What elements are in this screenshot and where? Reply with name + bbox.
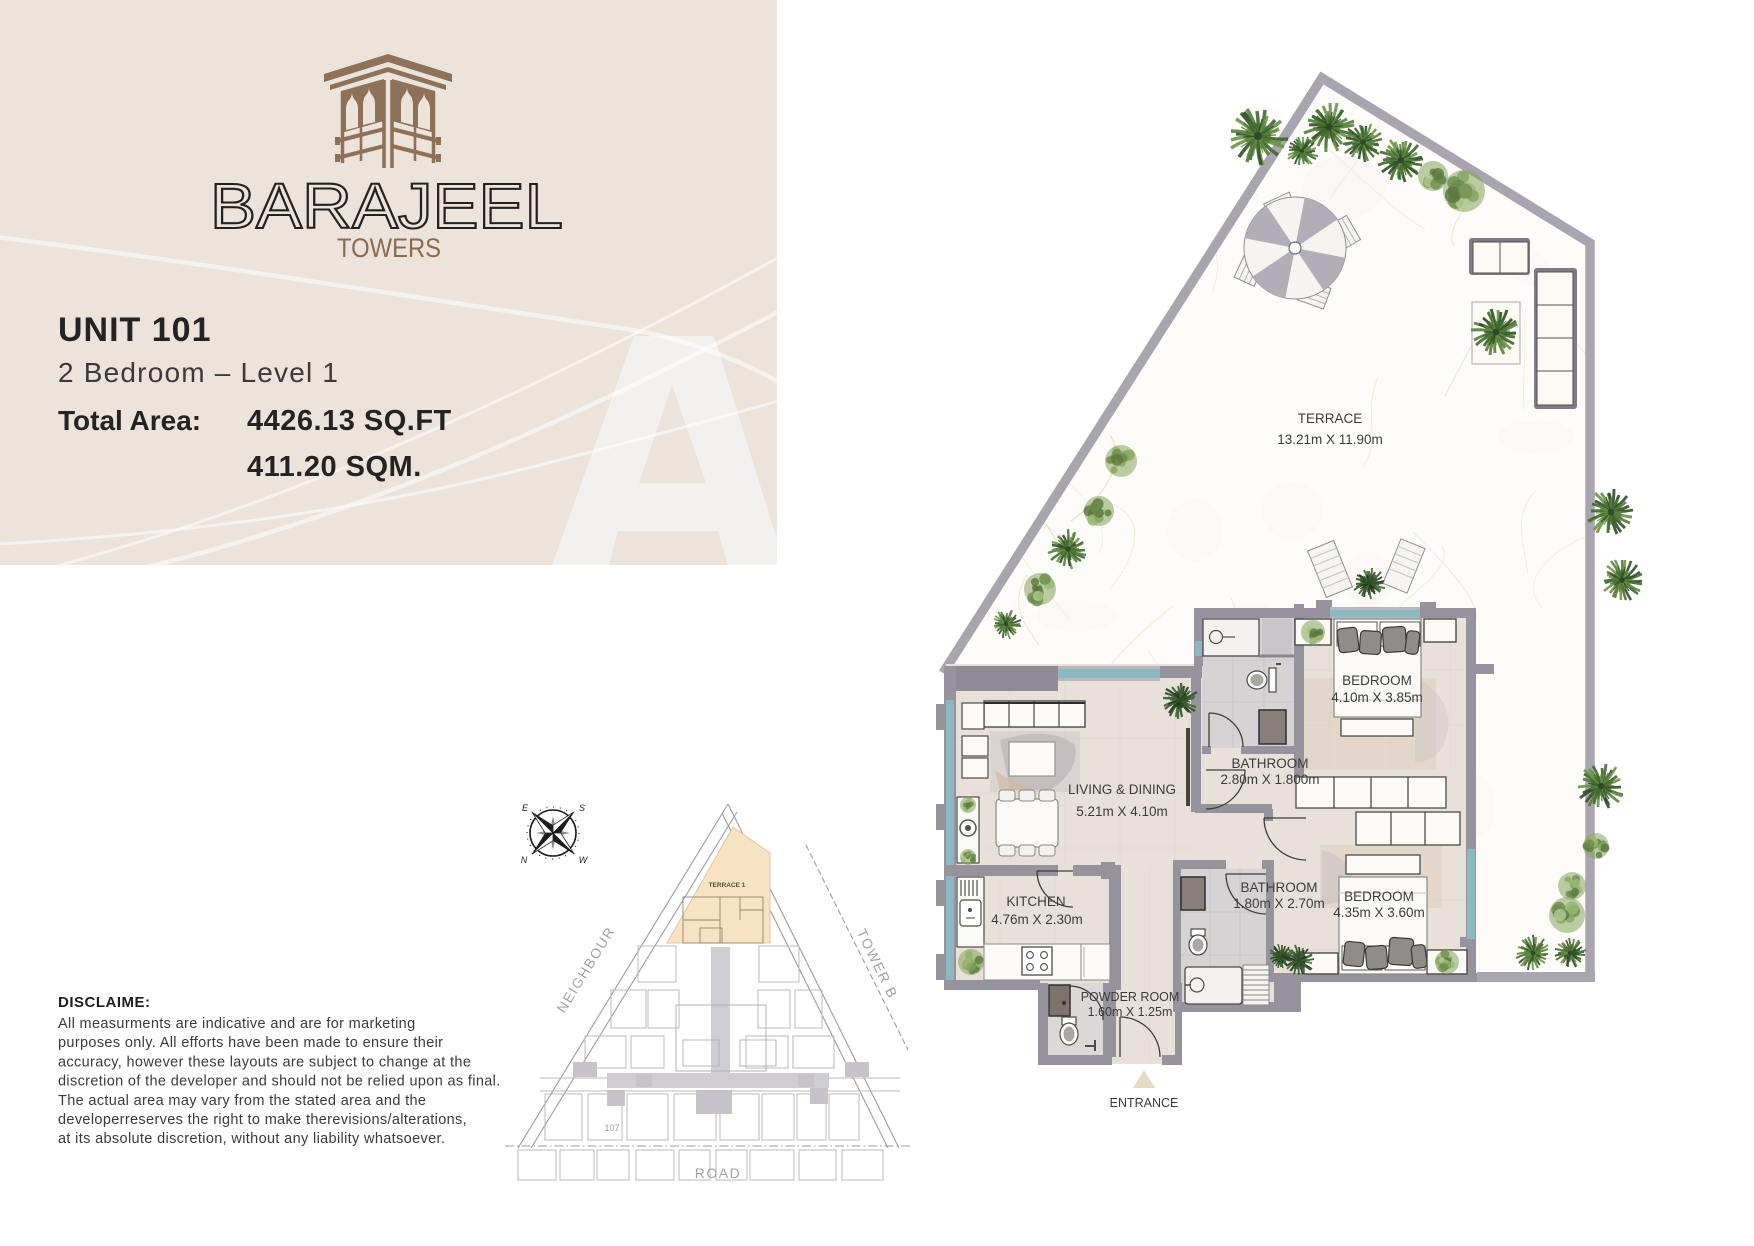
svg-text:TERRACE 1: TERRACE 1 [709,882,746,889]
svg-text:Total Area:: Total Area: [58,405,201,436]
svg-text:107: 107 [604,1123,619,1133]
svg-text:13.21m X 11.90m: 13.21m X 11.90m [1277,432,1383,447]
svg-text:at its absolute discretion, wi: at its absolute discretion, without any … [58,1131,445,1147]
svg-text:The actual area may vary from: The actual area may vary from the stated… [58,1093,426,1109]
svg-text:POWDER ROOM: POWDER ROOM [1081,990,1180,1004]
svg-text:BARAJEEL: BARAJEEL [210,170,563,242]
svg-text:ROAD: ROAD [695,1165,741,1181]
svg-text:S: S [579,803,585,813]
svg-text:DISCLAIME:: DISCLAIME: [58,994,151,1011]
svg-text:ENTRANCE: ENTRANCE [1110,1096,1179,1110]
svg-text:purposes only. All efforts hav: purposes only. All efforts have been mad… [58,1035,443,1051]
svg-text:1.60m X 1.25m: 1.60m X 1.25m [1088,1005,1173,1019]
svg-text:4.10m X 3.85m: 4.10m X 3.85m [1331,690,1423,705]
svg-text:BEDROOM: BEDROOM [1342,673,1412,688]
svg-text:developerreserves the right to: developerreserves the right to make ther… [58,1112,467,1128]
svg-text:4.76m X 2.30m: 4.76m X 2.30m [991,912,1083,927]
svg-text:accuracy, however these layout: accuracy, however these layouts are subj… [58,1054,471,1070]
svg-text:4.35m X 3.60m: 4.35m X 3.60m [1333,905,1425,920]
svg-text:discretion of the developer an: discretion of the developer and should n… [58,1074,501,1090]
svg-text:UNIT 101: UNIT 101 [58,311,212,349]
svg-text:KITCHEN: KITCHEN [1006,894,1065,909]
svg-text:5.21m X 4.10m: 5.21m X 4.10m [1076,804,1168,819]
svg-text:411.20 SQM.: 411.20 SQM. [247,451,422,483]
svg-text:E: E [522,803,529,813]
svg-text:BEDROOM: BEDROOM [1344,889,1414,904]
svg-text:N: N [521,855,528,865]
svg-text:2.80m X 1.800m: 2.80m X 1.800m [1220,772,1319,787]
svg-text:TOWERS: TOWERS [337,233,441,263]
svg-text:All measurments are indicative: All measurments are indicative and are f… [58,1016,416,1032]
svg-text:2 Bedroom – Level 1: 2 Bedroom – Level 1 [58,357,339,388]
svg-text:1.80m X 2.70m: 1.80m X 2.70m [1233,896,1325,911]
svg-text:LIVING & DINING: LIVING & DINING [1068,782,1176,797]
svg-text:BATHROOM: BATHROOM [1232,756,1309,771]
svg-text:TERRACE: TERRACE [1298,411,1363,426]
svg-text:BATHROOM: BATHROOM [1241,880,1318,895]
svg-text:4426.13 SQ.FT: 4426.13 SQ.FT [247,405,452,437]
